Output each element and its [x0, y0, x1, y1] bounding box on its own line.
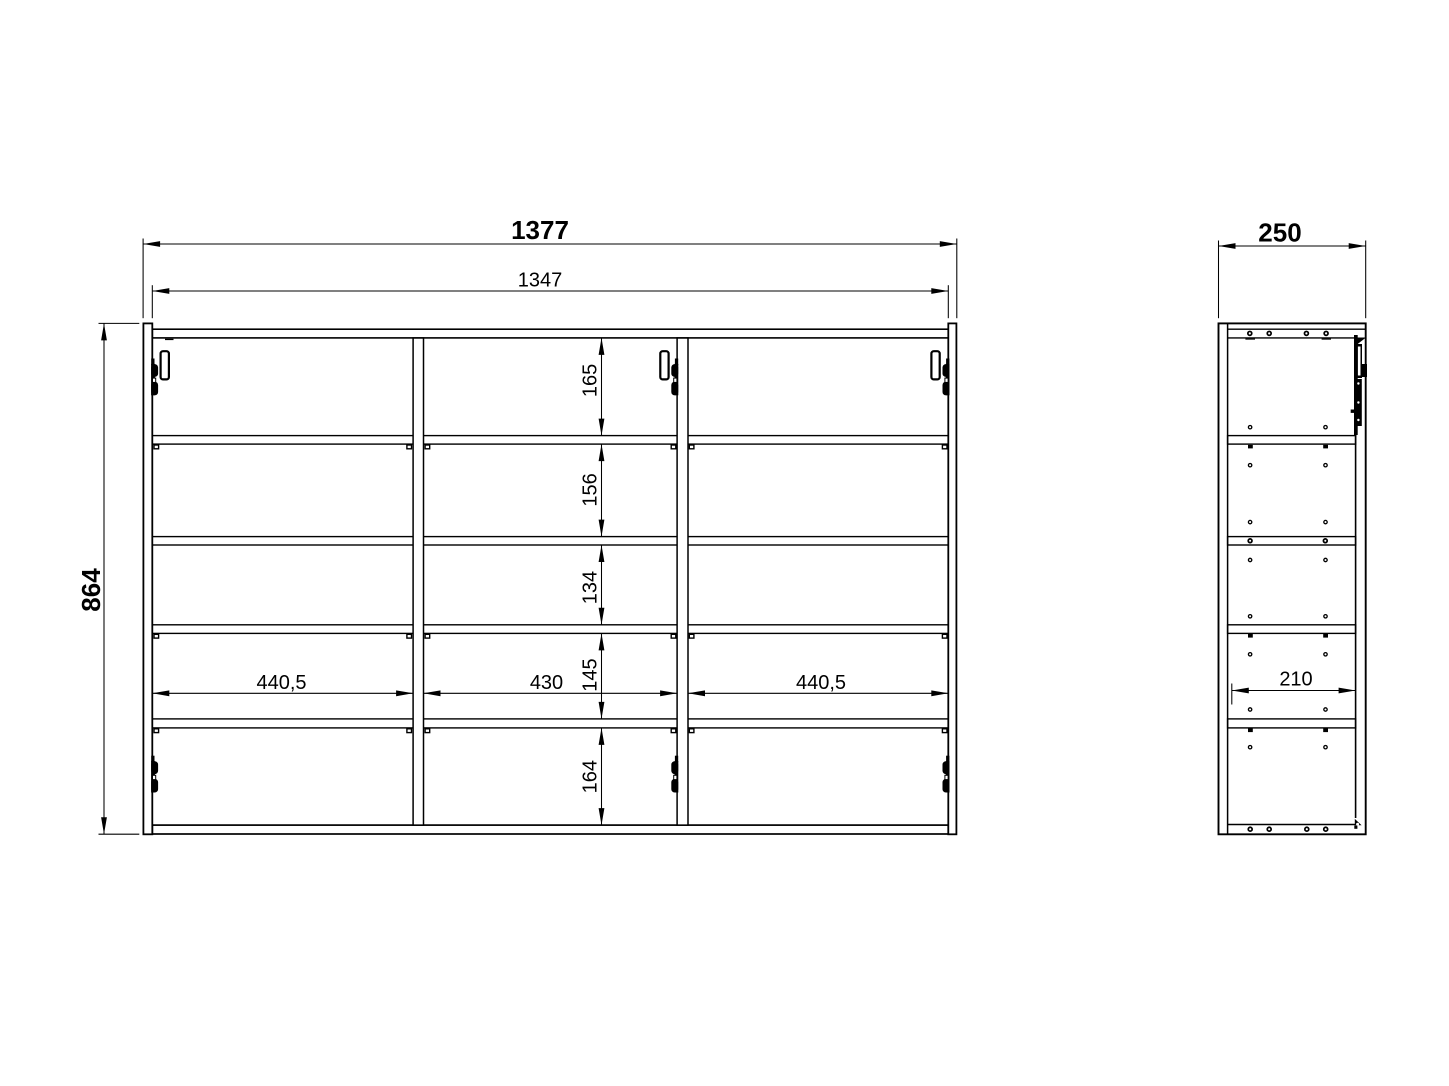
svg-text:134: 134: [580, 571, 602, 604]
svg-text:165: 165: [580, 364, 602, 397]
svg-text:250: 250: [1258, 218, 1301, 248]
svg-text:1347: 1347: [518, 270, 563, 292]
svg-text:164: 164: [580, 760, 602, 793]
svg-text:430: 430: [530, 672, 563, 694]
svg-text:864: 864: [76, 568, 106, 612]
svg-text:210: 210: [1279, 669, 1312, 691]
svg-text:440,5: 440,5: [256, 672, 306, 694]
svg-text:156: 156: [580, 473, 602, 506]
svg-text:440,5: 440,5: [796, 672, 846, 694]
svg-text:1377: 1377: [511, 215, 569, 245]
svg-text:145: 145: [580, 658, 602, 691]
